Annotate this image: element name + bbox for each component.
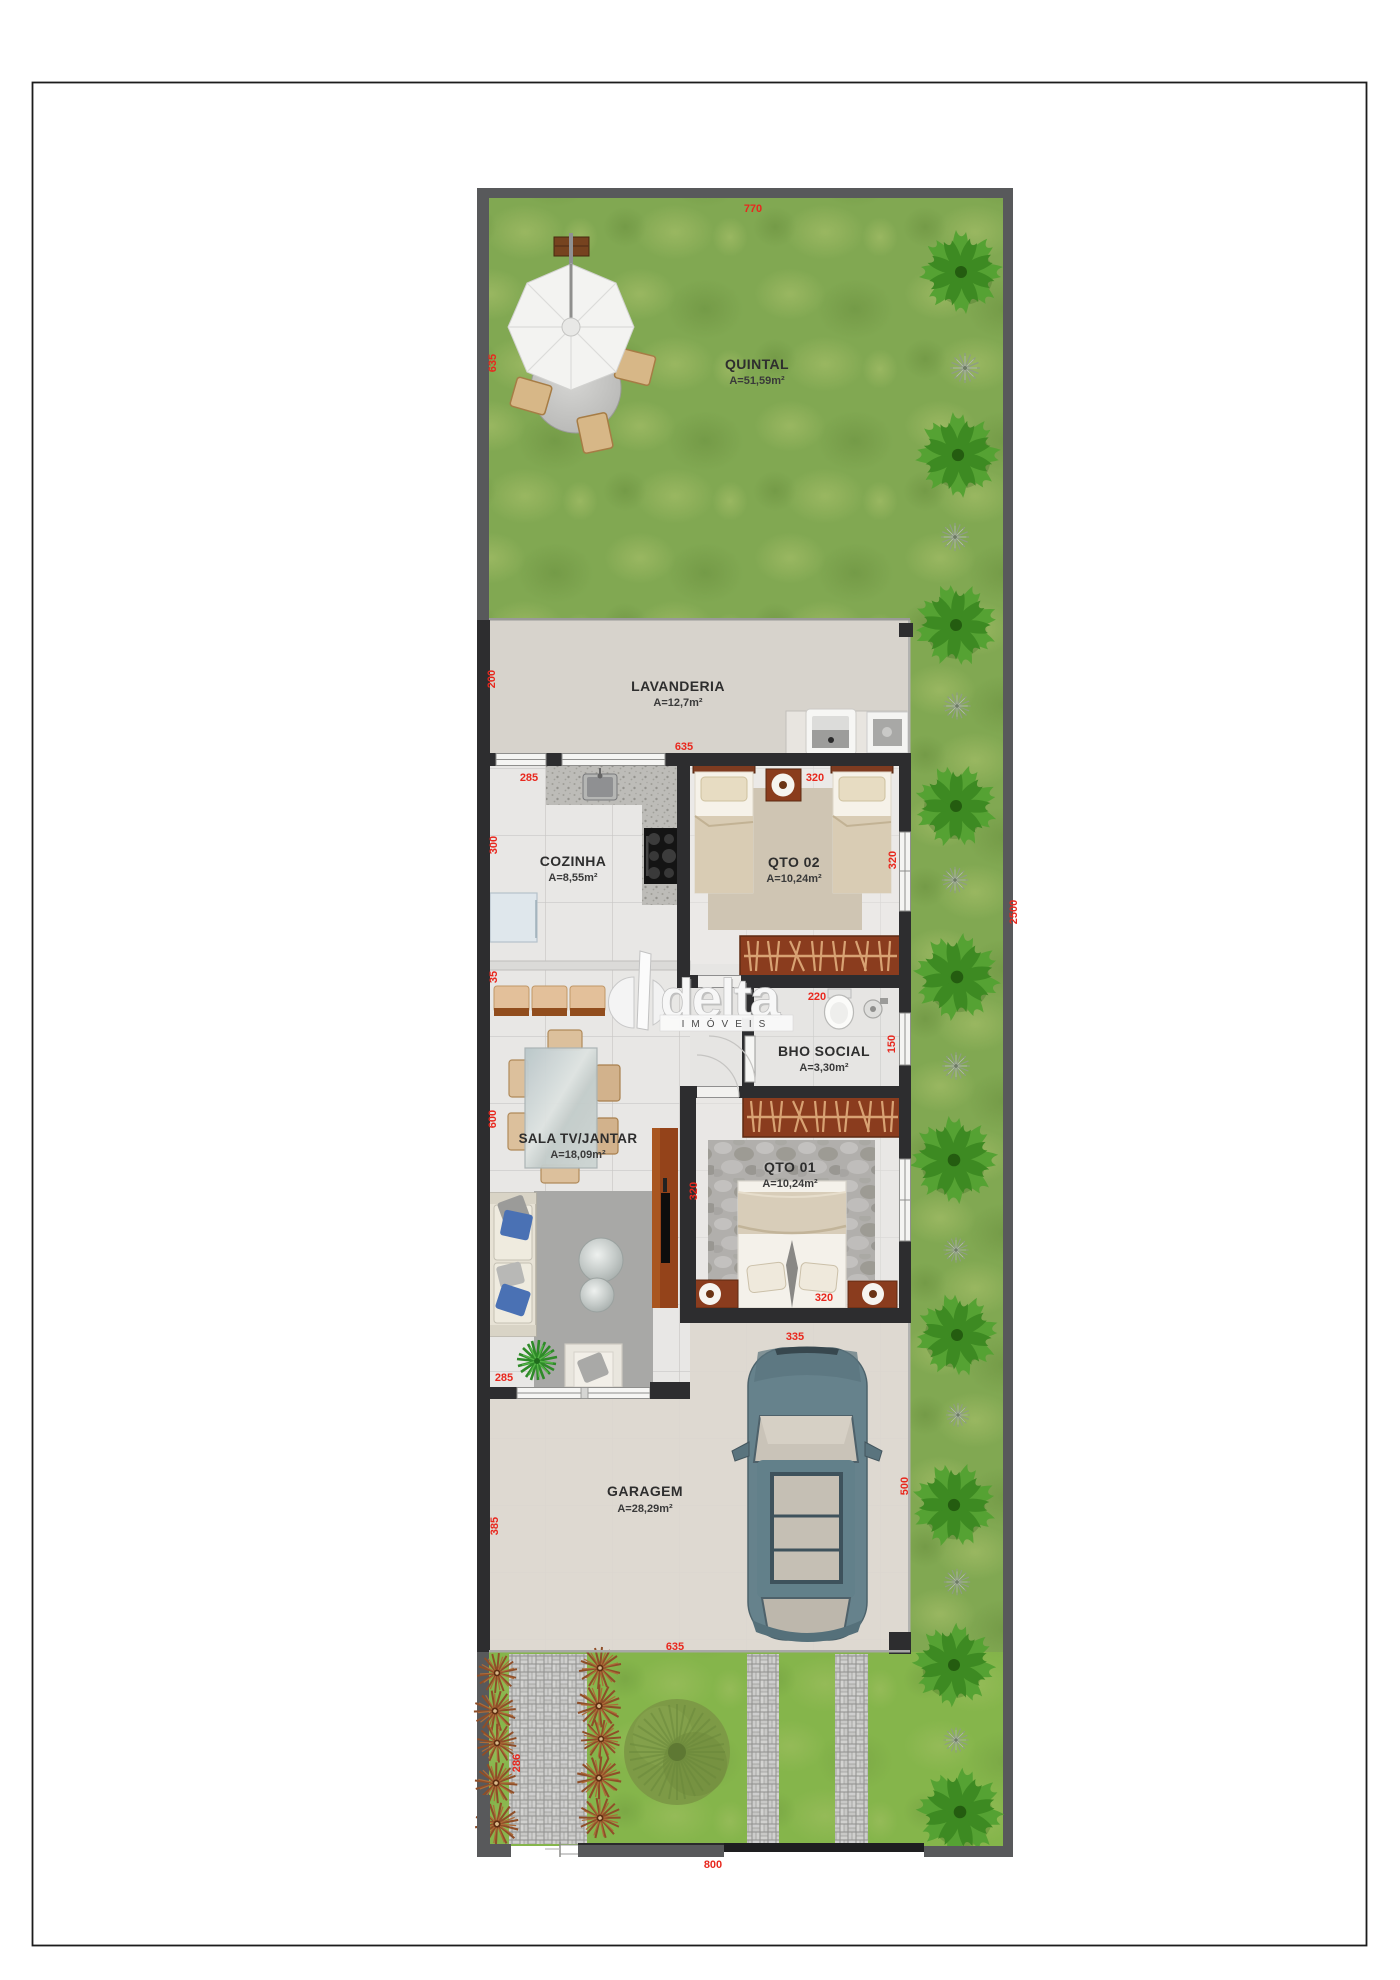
svg-text:A=18,09m²: A=18,09m² xyxy=(550,1149,606,1161)
svg-text:300: 300 xyxy=(488,836,500,854)
svg-text:320: 320 xyxy=(815,1292,833,1304)
svg-text:A=28,29m²: A=28,29m² xyxy=(617,1503,673,1515)
svg-text:A=51,59m²: A=51,59m² xyxy=(729,375,785,387)
svg-text:285: 285 xyxy=(520,772,538,784)
svg-text:635: 635 xyxy=(487,354,499,372)
svg-text:IMÓVEIS: IMÓVEIS xyxy=(682,1017,773,1030)
svg-text:A=12,7m²: A=12,7m² xyxy=(653,697,703,709)
svg-text:A=3,30m²: A=3,30m² xyxy=(799,1062,849,1074)
svg-text:385: 385 xyxy=(489,1517,501,1535)
svg-text:286: 286 xyxy=(511,1754,523,1772)
svg-text:COZINHA: COZINHA xyxy=(540,853,607,869)
svg-text:335: 335 xyxy=(786,1331,804,1343)
svg-text:500: 500 xyxy=(899,1477,911,1495)
svg-text:2500: 2500 xyxy=(1008,900,1020,924)
svg-text:220: 220 xyxy=(808,991,826,1003)
svg-text:BHO SOCIAL: BHO SOCIAL xyxy=(778,1043,870,1059)
svg-text:320: 320 xyxy=(887,851,899,869)
svg-text:A=10,24m²: A=10,24m² xyxy=(762,1178,818,1190)
svg-text:800: 800 xyxy=(704,1859,722,1871)
svg-text:200: 200 xyxy=(486,670,498,688)
svg-text:35: 35 xyxy=(488,971,500,983)
svg-text:A=10,24m²: A=10,24m² xyxy=(766,873,822,885)
svg-text:320: 320 xyxy=(806,772,824,784)
svg-text:635: 635 xyxy=(666,1641,684,1653)
svg-text:QTO 01: QTO 01 xyxy=(764,1159,816,1175)
svg-text:285: 285 xyxy=(495,1372,513,1384)
svg-text:320: 320 xyxy=(688,1182,700,1200)
svg-text:QTO 02: QTO 02 xyxy=(768,854,820,870)
svg-text:A=8,55m²: A=8,55m² xyxy=(548,872,598,884)
svg-text:LAVANDERIA: LAVANDERIA xyxy=(631,678,725,694)
svg-text:635: 635 xyxy=(675,741,693,753)
svg-text:600: 600 xyxy=(487,1110,499,1128)
svg-text:QUINTAL: QUINTAL xyxy=(725,356,789,372)
svg-text:150: 150 xyxy=(886,1035,898,1053)
svg-text:SALA TV/JANTAR: SALA TV/JANTAR xyxy=(519,1131,638,1146)
svg-text:GARAGEM: GARAGEM xyxy=(607,1483,683,1499)
svg-text:770: 770 xyxy=(744,203,762,215)
